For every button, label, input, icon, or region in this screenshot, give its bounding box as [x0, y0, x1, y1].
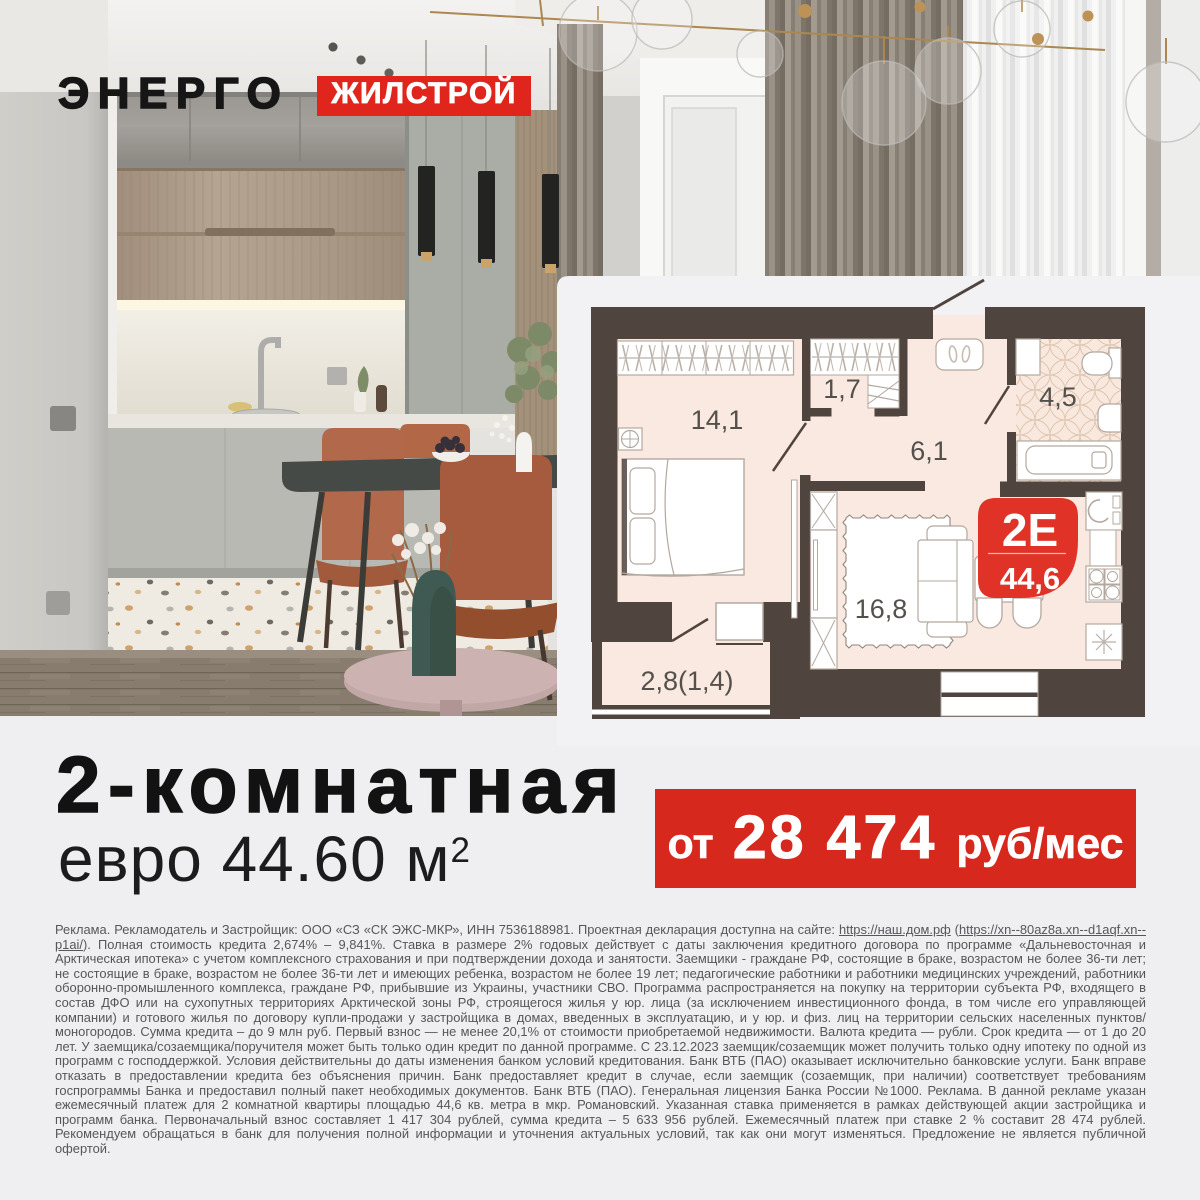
- svg-text:6,1: 6,1: [910, 436, 948, 466]
- svg-text:14,1: 14,1: [691, 405, 744, 435]
- svg-text:2Е: 2Е: [1002, 504, 1058, 556]
- svg-text:44,6: 44,6: [1000, 561, 1060, 596]
- svg-text:4,5: 4,5: [1039, 382, 1077, 412]
- svg-text:16,8: 16,8: [855, 594, 908, 624]
- svg-text:2,8(1,4): 2,8(1,4): [640, 666, 733, 696]
- svg-text:1,7: 1,7: [823, 374, 861, 404]
